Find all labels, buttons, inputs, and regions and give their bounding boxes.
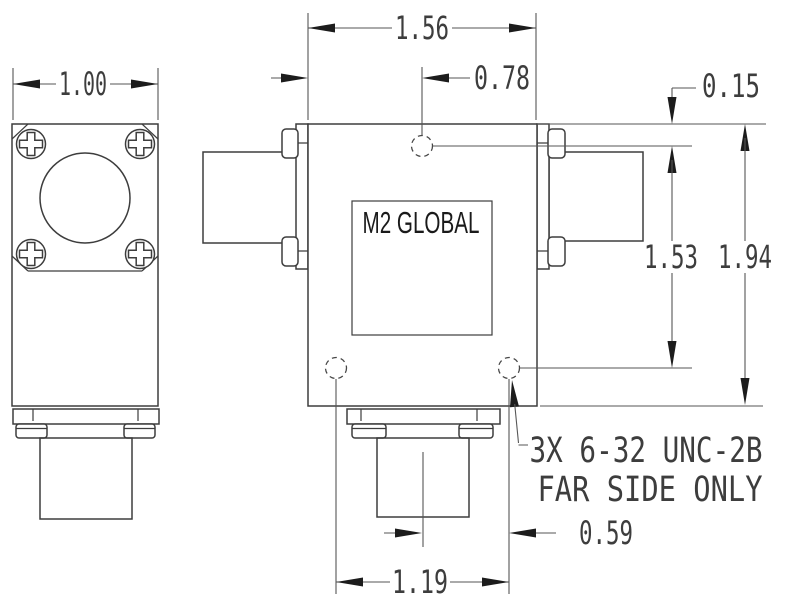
arrowhead-down — [668, 341, 677, 368]
arrowhead-down — [668, 97, 677, 124]
connector-nut — [282, 129, 298, 158]
arrowhead-left — [422, 74, 449, 83]
front-view: M2 GLOBAL — [203, 9, 772, 601]
side-view-body — [12, 124, 158, 406]
dim-text-hole-from-top: 0.15 — [702, 67, 760, 105]
dim-hole-horizontal-span: 1.19 — [336, 563, 509, 601]
connector-nut — [16, 424, 47, 438]
dim-text-hole-from-left: 0.78 — [474, 59, 530, 97]
arrowhead-right — [395, 529, 422, 538]
arrowhead-right — [509, 24, 536, 33]
flange-screw — [126, 240, 155, 269]
flange-screw — [17, 240, 46, 269]
side-view-dim-width: 1.00 — [13, 65, 158, 120]
dim-hole-from-top: 0.15 — [668, 67, 761, 124]
connector-barrel — [40, 438, 132, 519]
dim-body-height: 1.94 — [718, 124, 772, 405]
connector-nut — [352, 424, 386, 438]
front-bottom-connector — [347, 409, 500, 547]
dim-hole-vertical-span: 1.53 — [644, 146, 698, 368]
connector-barrel — [549, 152, 643, 241]
dim-text-hole-vertical-span: 1.53 — [644, 238, 698, 276]
dim-text-hole-horizontal-span: 1.19 — [392, 563, 448, 601]
connector-flange-plate — [13, 409, 159, 424]
brand-label: M2 GLOBAL — [363, 205, 480, 240]
dim-hole-from-left: 0.78 — [271, 59, 530, 97]
drawing-sheet: 1.00 — [0, 0, 800, 610]
arrowhead-right — [281, 74, 308, 83]
connector-nut — [548, 129, 565, 158]
far-side-note-text: FAR SIDE ONLY — [538, 470, 763, 510]
connector-barrel — [203, 152, 298, 243]
dim-text-body-height: 1.94 — [718, 238, 772, 276]
dim-text-side-width: 1.00 — [59, 65, 107, 103]
connector-nut — [459, 424, 493, 438]
side-view-bottom-connector — [13, 409, 159, 519]
flange-plate-ticks — [33, 409, 138, 421]
leader-line — [515, 404, 528, 445]
side-view: 1.00 — [12, 65, 159, 519]
thread-note-text: 3X 6-32 UNC-2B — [530, 431, 763, 471]
connector-nut — [548, 237, 565, 266]
thread-note-leader: 3X 6-32 UNC-2B FAR SIDE ONLY — [510, 380, 763, 510]
engineering-drawing: 1.00 — [0, 0, 800, 610]
arrowhead-down — [741, 378, 750, 405]
front-body: M2 GLOBAL — [308, 124, 537, 406]
flange-screw — [17, 130, 46, 159]
connector-nut — [124, 424, 155, 438]
arrowhead-left — [336, 578, 363, 587]
front-body-outline — [308, 124, 537, 406]
dim-text-hole-from-connector: 0.59 — [579, 514, 633, 552]
connector-nut — [282, 237, 298, 266]
dim-text-body-width: 1.56 — [395, 9, 449, 47]
arrowhead-left — [13, 80, 40, 89]
flange-screw — [126, 130, 155, 159]
arrowhead-right — [131, 80, 158, 89]
arrowhead-left — [308, 24, 335, 33]
arrowhead-right — [482, 578, 509, 587]
flange-plate-ticks — [361, 409, 477, 421]
arrowhead-left — [509, 529, 536, 538]
front-left-connector — [203, 124, 308, 269]
connector-bore-circle — [40, 153, 130, 243]
